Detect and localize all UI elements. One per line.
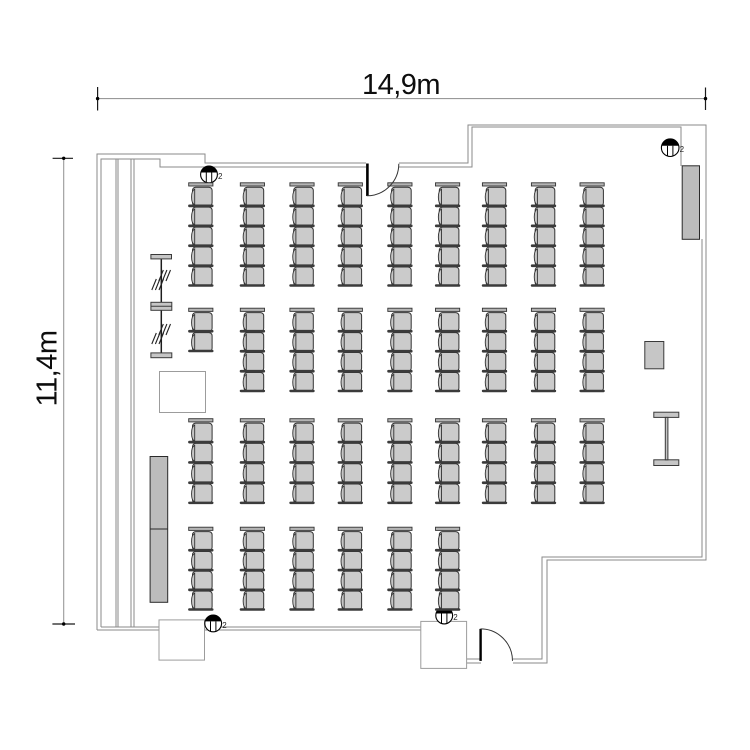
svg-text:2: 2 [218, 172, 223, 181]
svg-text:2: 2 [453, 613, 458, 622]
svg-text:2: 2 [680, 145, 685, 154]
svg-text:2: 2 [222, 621, 227, 630]
svg-text:11,4m: 11,4m [32, 331, 64, 407]
svg-text:14,9m: 14,9m [362, 69, 440, 101]
